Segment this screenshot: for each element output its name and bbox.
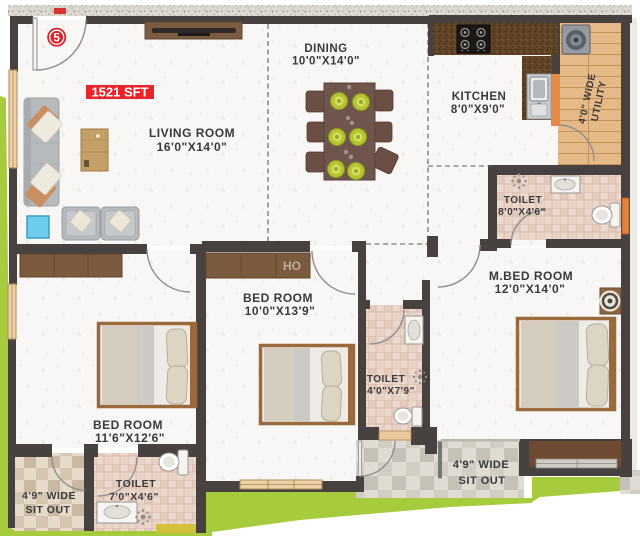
svg-text:8'0"X9'0": 8'0"X9'0" bbox=[451, 104, 505, 116]
svg-text:16'0"X14'0": 16'0"X14'0" bbox=[157, 140, 228, 154]
svg-text:8'0"X4'6": 8'0"X4'6" bbox=[498, 207, 546, 218]
svg-text:TOILET: TOILET bbox=[504, 195, 542, 206]
svg-text:DINING: DINING bbox=[304, 43, 347, 55]
svg-text:HO: HO bbox=[283, 259, 301, 273]
svg-text:TOILET: TOILET bbox=[367, 374, 405, 385]
svg-text:TOILET: TOILET bbox=[116, 478, 156, 490]
svg-text:4'9" WIDE: 4'9" WIDE bbox=[22, 490, 76, 502]
svg-text:5: 5 bbox=[53, 33, 60, 45]
svg-text:M.BED ROOM: M.BED ROOM bbox=[489, 269, 573, 283]
svg-text:LIVING ROOM: LIVING ROOM bbox=[149, 126, 235, 140]
svg-text:10'0"X13'9": 10'0"X13'9" bbox=[245, 304, 316, 318]
svg-text:BED ROOM: BED ROOM bbox=[243, 291, 313, 305]
svg-text:4'0"X7'9": 4'0"X7'9" bbox=[367, 386, 415, 397]
svg-text:11'6"X12'6": 11'6"X12'6" bbox=[95, 431, 165, 445]
svg-text:SIT OUT: SIT OUT bbox=[459, 475, 506, 487]
svg-text:1521 SFT: 1521 SFT bbox=[91, 85, 148, 100]
svg-text:BED ROOM: BED ROOM bbox=[93, 418, 163, 432]
svg-text:KITCHEN: KITCHEN bbox=[452, 91, 507, 103]
svg-text:12'0"X14'0": 12'0"X14'0" bbox=[495, 282, 566, 296]
svg-text:7'0"X4'6": 7'0"X4'6" bbox=[109, 491, 159, 503]
svg-text:10'0"X14'0": 10'0"X14'0" bbox=[292, 56, 360, 68]
svg-text:4'9" WIDE: 4'9" WIDE bbox=[453, 459, 509, 471]
svg-text:SIT OUT: SIT OUT bbox=[26, 504, 71, 516]
